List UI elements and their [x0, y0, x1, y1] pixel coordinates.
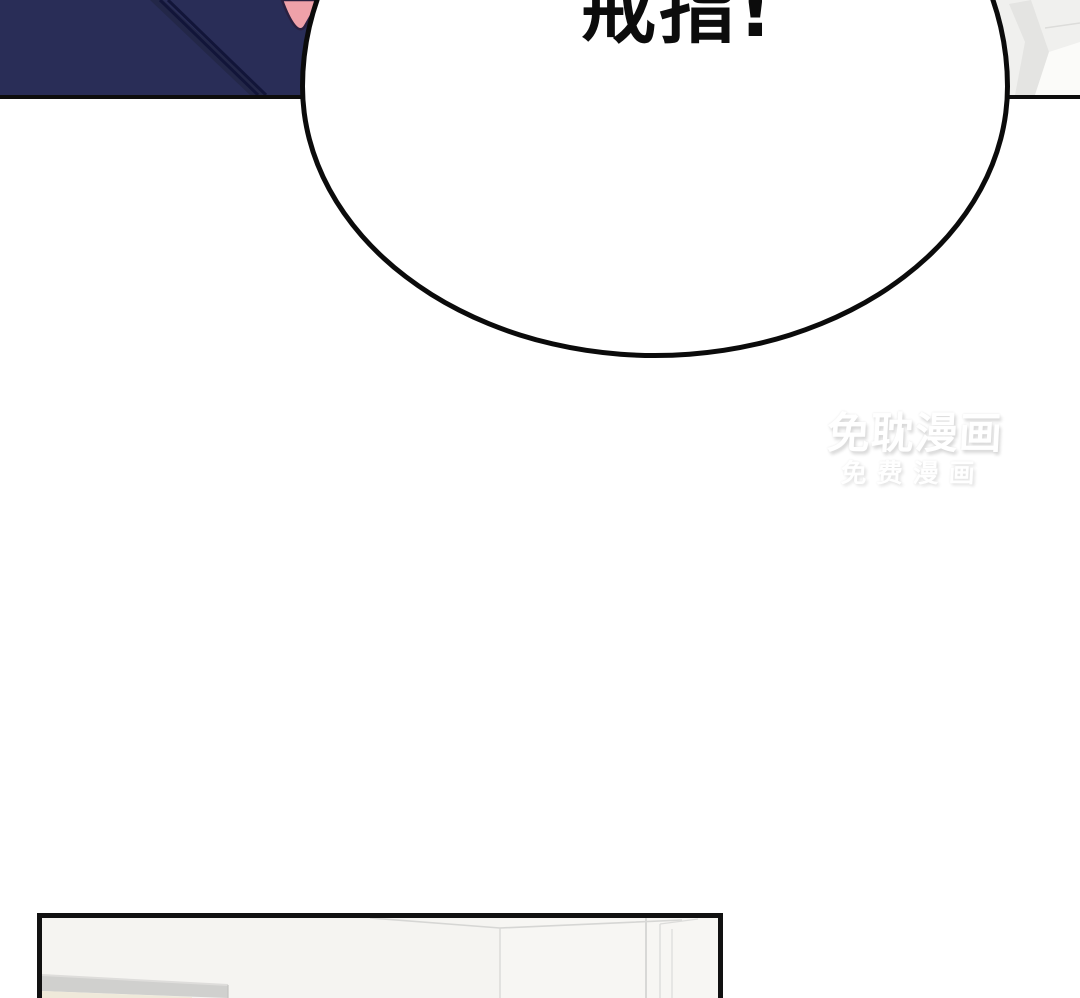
watermark-line2: 免费漫画 — [814, 461, 1011, 487]
watermark: 免耽漫画 免费漫画 — [814, 413, 1014, 487]
speech-bubble-text: 戒指! — [580, 0, 776, 48]
jacket-shape — [0, 0, 340, 95]
watermark-line1: 免耽漫画 — [816, 413, 1014, 456]
comic-page: 戒指! 免耽漫画 免费漫画 — [0, 0, 1080, 998]
jacket-artwork — [0, 0, 340, 95]
room-artwork — [42, 918, 718, 998]
bottom-panel — [37, 913, 723, 998]
